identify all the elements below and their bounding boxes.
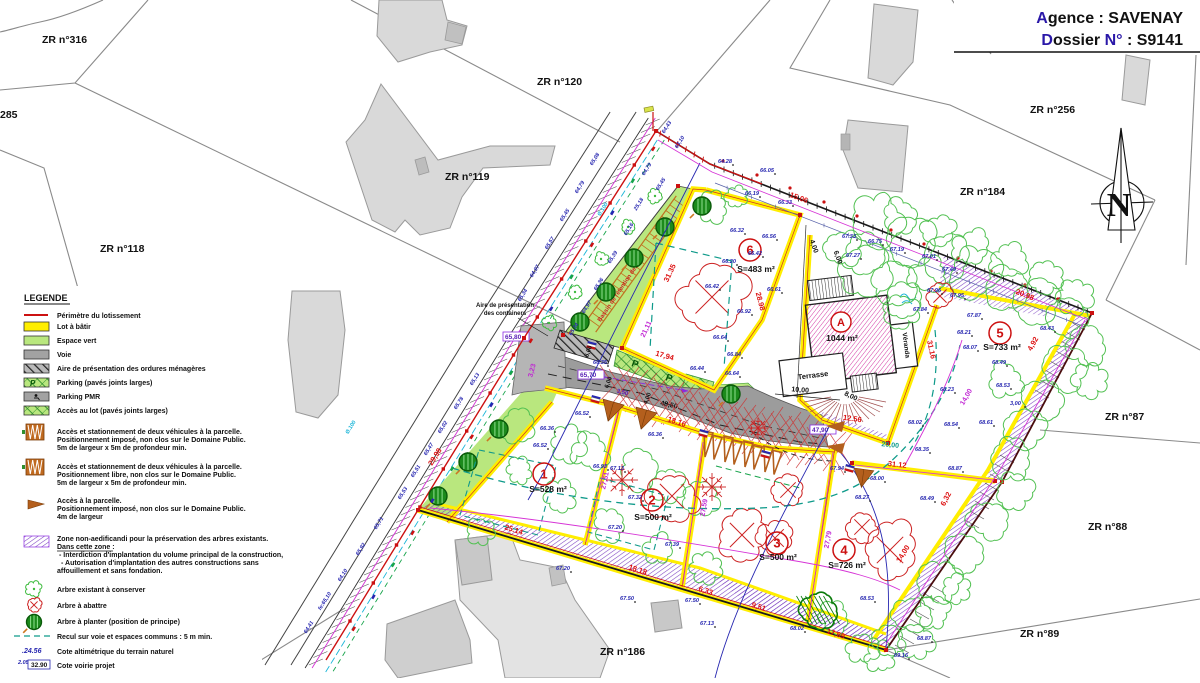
svg-text:Agence : SAVENAY: Agence : SAVENAY xyxy=(1036,10,1183,27)
svg-text:Parking PMR: Parking PMR xyxy=(57,394,100,401)
svg-text:S=726 m²: S=726 m² xyxy=(828,560,866,570)
svg-text:S=733 m²: S=733 m² xyxy=(983,342,1021,352)
svg-text:2: 2 xyxy=(648,493,655,508)
svg-text:A: A xyxy=(837,317,845,329)
svg-text:ZR n°184: ZR n°184 xyxy=(960,186,1005,198)
svg-text:68.27: 68.27 xyxy=(855,495,870,501)
svg-text:ZR n°256: ZR n°256 xyxy=(1030,104,1075,116)
svg-text:S=500 m²: S=500 m² xyxy=(759,552,797,562)
svg-text:67.39: 67.39 xyxy=(665,542,680,548)
svg-text:66.42: 66.42 xyxy=(748,251,763,257)
svg-text:66.61: 66.61 xyxy=(767,287,781,293)
svg-text:ZR n°119: ZR n°119 xyxy=(445,171,490,183)
svg-text:Positionnement imposé, non clo: Positionnement imposé, non clos sur le D… xyxy=(57,437,246,444)
svg-text:ZR n°120: ZR n°120 xyxy=(537,76,582,88)
svg-text:66.64: 66.64 xyxy=(713,335,728,341)
svg-text:- Interdiction d'implantation: - Interdiction d'implantation du volume … xyxy=(59,552,283,559)
svg-text:N: N xyxy=(1107,187,1132,224)
svg-text:68.54: 68.54 xyxy=(944,422,959,428)
svg-text:66.36: 66.36 xyxy=(540,426,555,432)
svg-text:Accès et stationnement de deux: Accès et stationnement de deux véhicules… xyxy=(57,464,242,471)
svg-text:Zone non-aedificandi pour la p: Zone non-aedificandi pour la préservatio… xyxy=(57,536,268,543)
svg-text:5m de largeur x 5m de profonde: 5m de largeur x 5m de profondeur min. xyxy=(57,445,187,452)
svg-text:66.64: 66.64 xyxy=(725,371,740,377)
svg-text:Voie: Voie xyxy=(57,352,71,359)
svg-text:3,00: 3,00 xyxy=(1010,401,1022,407)
svg-text:67.95: 67.95 xyxy=(950,293,965,299)
svg-text:32.90: 32.90 xyxy=(31,662,48,669)
svg-text:67.49: 67.49 xyxy=(942,267,957,273)
svg-text:67.19: 67.19 xyxy=(890,247,905,253)
svg-text:66.75: 66.75 xyxy=(868,239,883,245)
svg-text:66.32: 66.32 xyxy=(730,228,745,234)
svg-text:Aire de présentation des ordur: Aire de présentation des ordures ménagèr… xyxy=(57,366,206,373)
svg-text:67.01: 67.01 xyxy=(922,254,936,260)
svg-text:Accès au lot (pavés joints lar: Accès au lot (pavés joints larges) xyxy=(57,408,168,415)
svg-text:68.21: 68.21 xyxy=(957,330,971,336)
svg-text:ZR n°186: ZR n°186 xyxy=(600,646,645,658)
svg-text:66.52: 66.52 xyxy=(575,411,590,417)
svg-text:ZR n°316: ZR n°316 xyxy=(42,34,87,46)
svg-text:66.42: 66.42 xyxy=(705,284,720,290)
svg-text:Espace vert: Espace vert xyxy=(57,338,97,345)
svg-text:ZR n°89: ZR n°89 xyxy=(1020,628,1059,640)
svg-text:66.52: 66.52 xyxy=(533,443,548,449)
svg-text:66.92: 66.92 xyxy=(737,309,752,315)
svg-text:65,80: 65,80 xyxy=(505,334,522,341)
svg-text:67.87: 67.87 xyxy=(967,313,982,319)
svg-text:68.02: 68.02 xyxy=(908,420,923,426)
svg-text:Arbre à abattre: Arbre à abattre xyxy=(57,603,107,610)
svg-text:Accès à la parcelle.: Accès à la parcelle. xyxy=(57,498,122,505)
svg-text:66.84: 66.84 xyxy=(727,352,742,358)
svg-text:.24.56: .24.56 xyxy=(22,648,42,655)
svg-text:S=528 m²: S=528 m² xyxy=(529,484,567,494)
svg-text:68.07: 68.07 xyxy=(963,345,978,351)
svg-text:68.23: 68.23 xyxy=(940,387,955,393)
svg-text:Positionnement imposé, non clo: Positionnement imposé, non clos sur le D… xyxy=(57,506,246,513)
svg-text:285: 285 xyxy=(0,109,18,121)
svg-text:68.49: 68.49 xyxy=(992,360,1007,366)
svg-text:67.33: 67.33 xyxy=(842,234,857,240)
svg-text:Aire de présentation: Aire de présentation xyxy=(476,303,534,309)
svg-text:68.53: 68.53 xyxy=(996,383,1011,389)
svg-text:66.36: 66.36 xyxy=(648,432,663,438)
svg-text:68.53: 68.53 xyxy=(860,596,875,602)
svg-text:Cote voirie projet: Cote voirie projet xyxy=(57,663,115,670)
svg-text:Cote altimétrique du terrain n: Cote altimétrique du terrain naturel xyxy=(57,649,174,656)
svg-text:67.84: 67.84 xyxy=(913,307,928,313)
svg-text:1044 m²: 1044 m² xyxy=(826,333,858,343)
svg-text:68.35: 68.35 xyxy=(915,447,930,453)
svg-text:5m de largeur x 5m de profonde: 5m de largeur x 5m de profondeur min. xyxy=(57,480,187,487)
svg-text:ZR n°88: ZR n°88 xyxy=(1088,521,1127,533)
svg-text:Positionnement libre, non clos: Positionnement libre, non clos sur le Do… xyxy=(57,472,236,479)
svg-text:Dans cette zone :: Dans cette zone : xyxy=(57,544,115,551)
svg-text:64.28: 64.28 xyxy=(718,159,733,165)
svg-text:- Autorisation d'implantation: - Autorisation d'implantation des autres… xyxy=(61,560,259,567)
svg-text:68.43: 68.43 xyxy=(1040,326,1055,332)
svg-text:4: 4 xyxy=(840,543,848,558)
svg-text:67.20: 67.20 xyxy=(608,525,623,531)
svg-text:Arbre existant à conserver: Arbre existant à conserver xyxy=(57,587,146,594)
svg-text:Recul sur voie et espaces comm: Recul sur voie et espaces communs : 5 m … xyxy=(57,634,212,641)
svg-text:Périmètre du lotissement: Périmètre du lotissement xyxy=(57,313,141,320)
svg-text:Arbre à planter (position de p: Arbre à planter (position de principe) xyxy=(57,619,180,626)
svg-text:67.50: 67.50 xyxy=(685,598,700,604)
svg-text:68.49: 68.49 xyxy=(920,496,935,502)
svg-text:P: P xyxy=(30,379,36,388)
svg-text:66.44: 66.44 xyxy=(690,366,705,372)
svg-text:67.20: 67.20 xyxy=(556,566,571,572)
svg-text:5: 5 xyxy=(996,326,1003,341)
svg-text:S=500 m²: S=500 m² xyxy=(634,512,672,522)
svg-text:des containers: des containers xyxy=(484,311,527,317)
svg-text:ZR n°118: ZR n°118 xyxy=(100,243,145,255)
svg-text:Lot à bâtir: Lot à bâtir xyxy=(57,324,91,331)
svg-text:67.96: 67.96 xyxy=(927,288,942,294)
svg-text:67.27: 67.27 xyxy=(846,253,861,259)
svg-text:66.93: 66.93 xyxy=(593,464,608,470)
svg-text:3: 3 xyxy=(773,536,780,551)
svg-text:S=483 m²: S=483 m² xyxy=(737,264,775,274)
svg-text:68.02: 68.02 xyxy=(790,626,805,632)
svg-text:4m de largeur: 4m de largeur xyxy=(57,514,103,521)
svg-text:68.87: 68.87 xyxy=(917,636,932,642)
svg-text:66.35: 66.35 xyxy=(593,360,608,366)
svg-text:67.50: 67.50 xyxy=(620,596,635,602)
svg-text:66.33: 66.33 xyxy=(778,200,793,206)
svg-text:68.61: 68.61 xyxy=(979,420,993,426)
svg-text:67.32: 67.32 xyxy=(628,495,643,501)
svg-text:66.20: 66.20 xyxy=(722,259,737,265)
svg-text:Parking (pavés joints larges): Parking (pavés joints larges) xyxy=(57,380,152,387)
svg-text:ZR n°87: ZR n°87 xyxy=(1105,411,1144,423)
svg-text:66.19: 66.19 xyxy=(745,191,760,197)
svg-text:66.05: 66.05 xyxy=(760,168,775,174)
svg-text:68.87: 68.87 xyxy=(948,466,963,472)
svg-text:67.94: 67.94 xyxy=(830,466,845,472)
svg-text:68.00: 68.00 xyxy=(870,476,885,482)
svg-text:affouillement et sans fondatio: affouillement et sans fondation. xyxy=(57,568,162,575)
svg-text:66.56: 66.56 xyxy=(762,234,777,240)
svg-text:65,70: 65,70 xyxy=(580,372,597,379)
svg-text:Accès et stationnement de deux: Accès et stationnement de deux véhicules… xyxy=(57,429,242,436)
svg-text:67.13: 67.13 xyxy=(610,466,625,472)
svg-text:LEGENDE: LEGENDE xyxy=(24,293,68,303)
svg-text:69.16: 69.16 xyxy=(894,653,909,659)
svg-text:Dossier N° : S9141: Dossier N° : S9141 xyxy=(1041,32,1183,49)
svg-text:1: 1 xyxy=(540,467,547,482)
svg-text:67.13: 67.13 xyxy=(700,621,715,627)
